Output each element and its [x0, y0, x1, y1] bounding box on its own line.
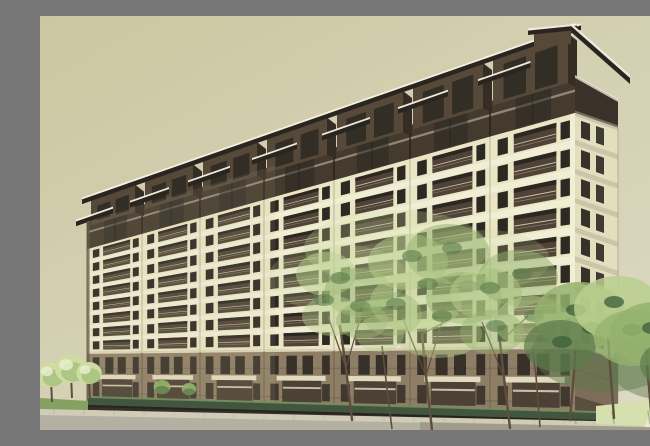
window	[498, 164, 508, 182]
tree-foliage-clump	[402, 250, 422, 262]
tree-foliage-clump	[480, 282, 500, 294]
tree-foliage-clump	[330, 272, 350, 284]
podium-joint	[489, 348, 490, 416]
window	[498, 137, 508, 156]
podium-window	[454, 354, 466, 375]
shrub-shade	[183, 388, 195, 395]
tree-canopy-highlight	[59, 359, 73, 370]
side-window	[581, 121, 590, 141]
window	[397, 165, 405, 181]
terrace-slab	[424, 376, 480, 382]
tree-foliage-clump	[552, 336, 572, 348]
roof-cap-side	[327, 118, 336, 159]
side-window	[596, 184, 604, 204]
window	[476, 196, 485, 213]
window	[417, 183, 427, 200]
podium-window	[322, 384, 330, 401]
terrace-slab	[348, 376, 401, 382]
penthouse-mullion	[371, 140, 372, 170]
cap-window	[535, 45, 558, 90]
roof-cap-side	[483, 63, 492, 112]
podium-window	[303, 356, 314, 375]
penthouse-mullion	[298, 161, 299, 190]
tree-foliage-clump	[432, 310, 452, 322]
tree-foliage-clump	[486, 320, 506, 332]
window	[341, 180, 350, 195]
window	[341, 202, 350, 217]
terrace-recess	[512, 382, 560, 407]
side-window	[596, 155, 604, 175]
tree-foliage-clump	[604, 296, 624, 308]
window	[417, 159, 427, 176]
tree-foliage-clump	[512, 268, 532, 280]
podium-joint	[333, 350, 334, 412]
tree-foliage-clump	[314, 294, 334, 306]
podium-window	[476, 386, 485, 405]
side-window	[581, 237, 590, 257]
window	[561, 265, 570, 283]
terrace-recess	[431, 382, 476, 406]
side-window	[581, 150, 590, 170]
architectural-rendering	[40, 16, 650, 430]
roof-cap-side	[403, 91, 412, 136]
podium-window	[397, 385, 405, 403]
tree-canopy-highlight	[41, 367, 53, 377]
window	[322, 207, 330, 221]
podium-window	[561, 387, 570, 407]
window	[476, 169, 485, 187]
terrace-slab	[277, 376, 326, 381]
podium-window	[397, 355, 405, 375]
window	[561, 178, 570, 197]
window	[561, 207, 570, 226]
penthouse-mullion	[449, 116, 450, 148]
podium-joint	[409, 349, 410, 414]
podium-window	[322, 355, 330, 374]
tree-foliage-clump	[386, 298, 406, 310]
render-canvas	[40, 16, 650, 430]
side-window	[581, 208, 590, 228]
tree-foliage-clump	[418, 278, 438, 290]
podium-window	[417, 385, 427, 403]
sapling-canopy	[356, 316, 404, 352]
side-window	[581, 179, 590, 199]
window	[561, 120, 570, 140]
terrace-recess	[282, 381, 321, 403]
window	[476, 143, 485, 161]
window	[498, 191, 508, 209]
side-window	[596, 242, 604, 262]
tree-canopy-highlight	[80, 365, 91, 374]
podium-window	[286, 356, 297, 375]
podium-window	[476, 354, 485, 375]
window	[561, 149, 570, 168]
side-window	[596, 126, 604, 146]
window	[397, 189, 405, 205]
window	[561, 236, 570, 254]
tree-foliage-clump	[442, 242, 462, 254]
side-window	[596, 213, 604, 233]
terrace-recess	[354, 381, 397, 404]
window	[322, 186, 330, 201]
podium-window	[358, 355, 369, 375]
penthouse-mullion	[532, 92, 533, 125]
shrub-shade	[155, 386, 169, 394]
